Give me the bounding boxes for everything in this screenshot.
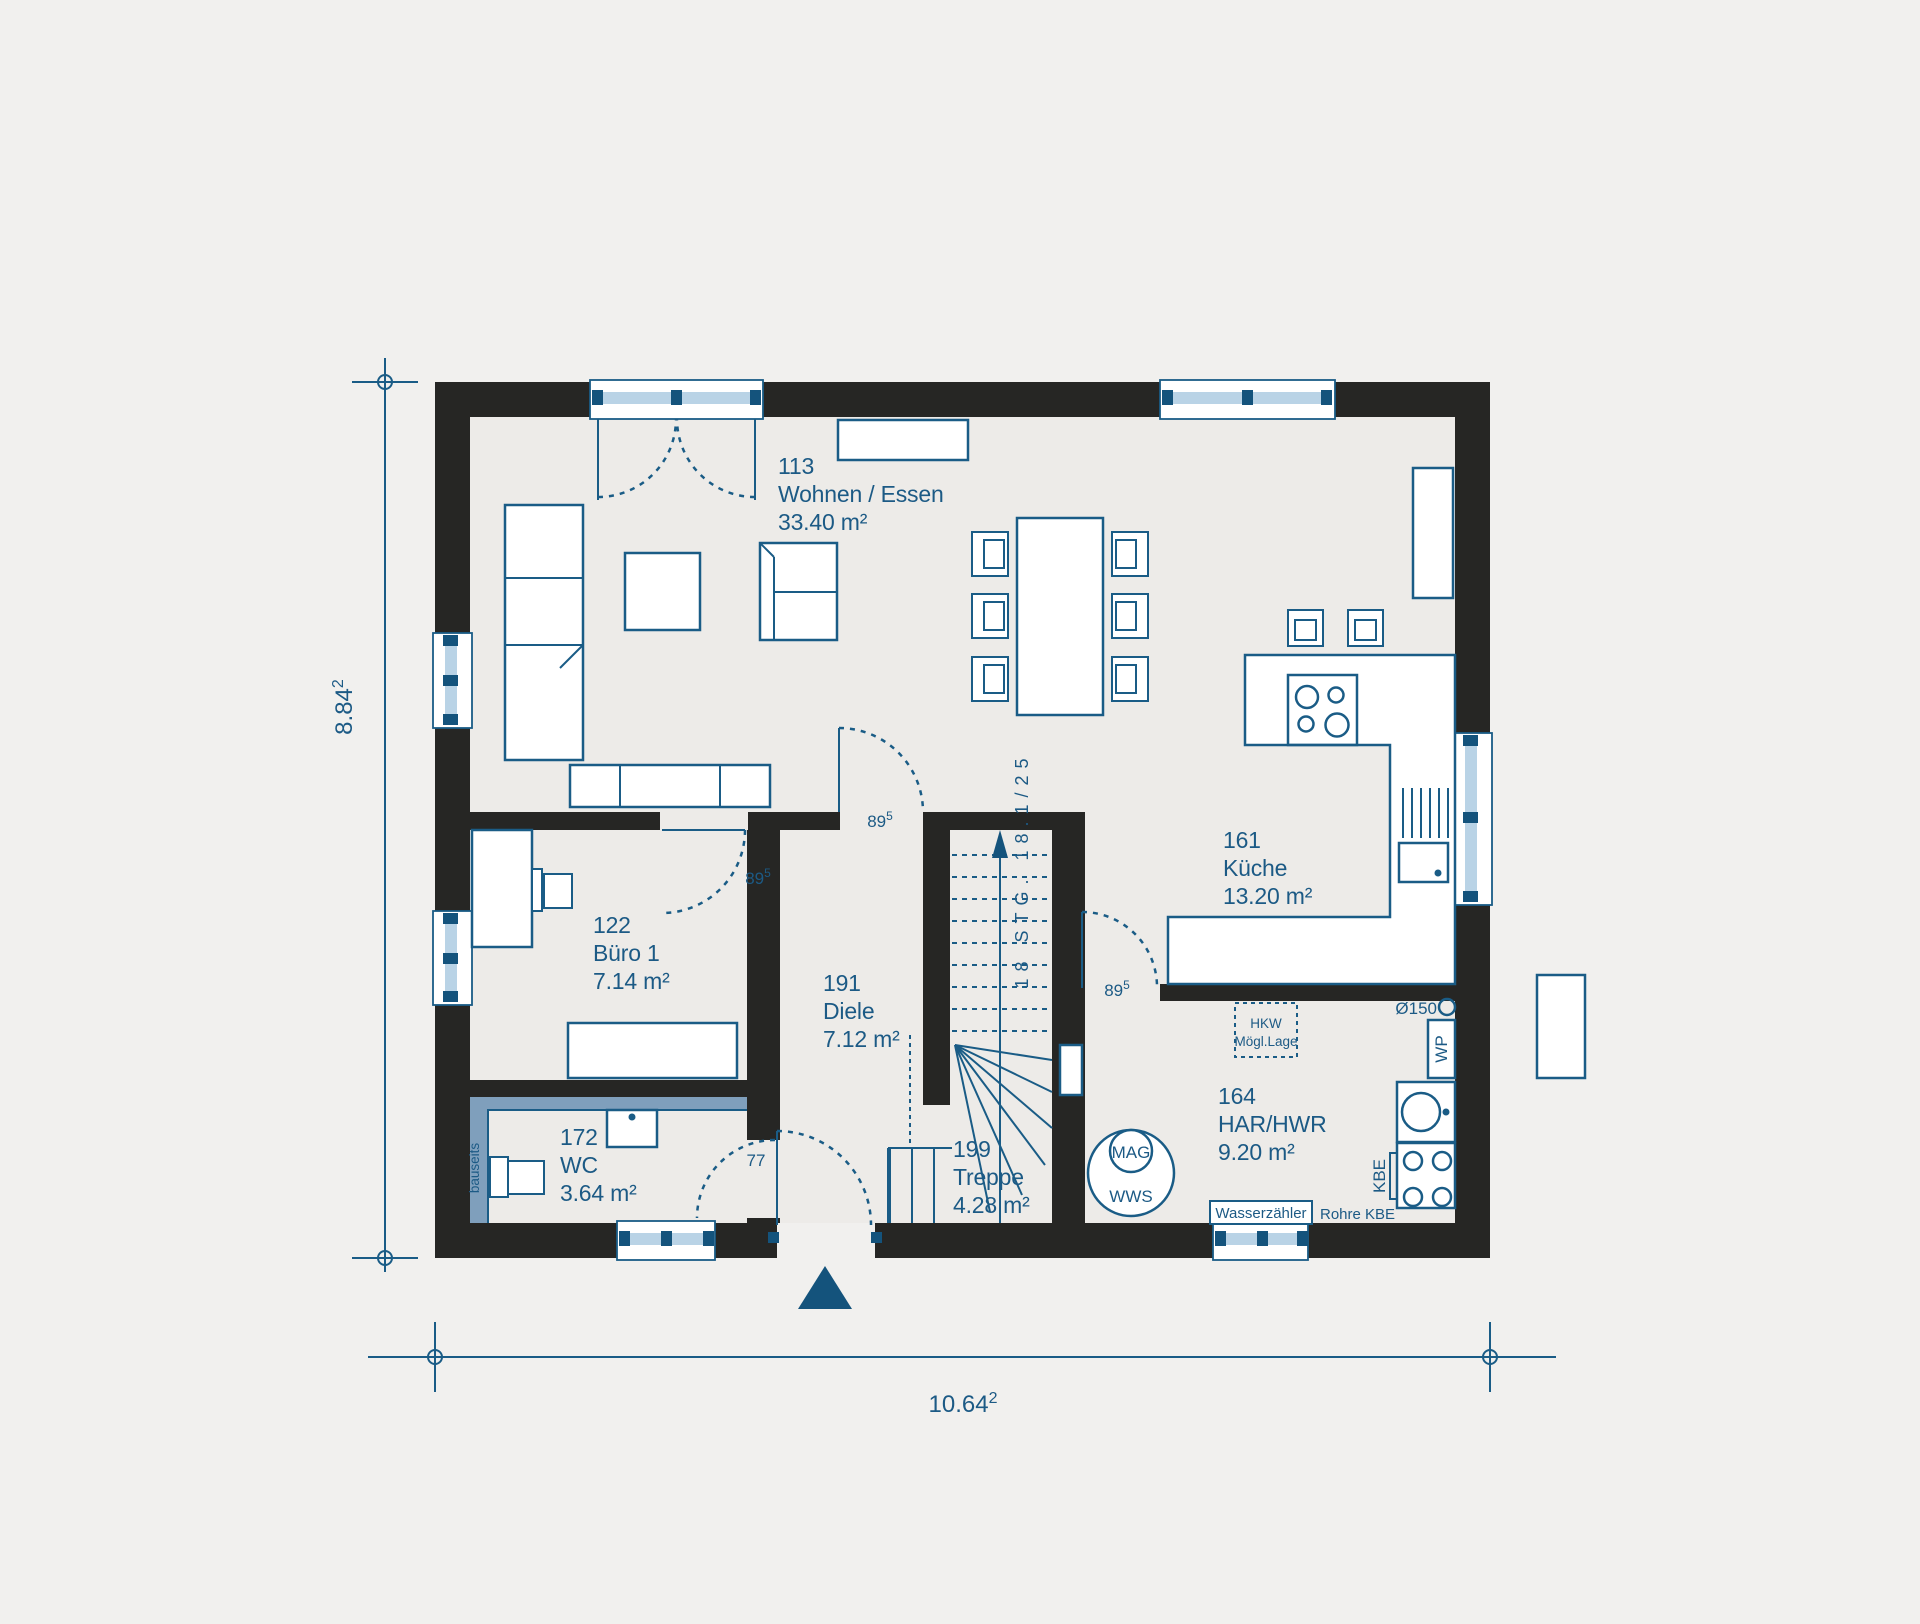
window-right-kueche (1453, 733, 1492, 905)
stool (1288, 610, 1323, 646)
desk (472, 830, 532, 947)
exterior-unit (1537, 975, 1585, 1078)
wp-label: WP (1432, 1035, 1451, 1062)
tv-lowboard (570, 765, 770, 807)
floor-plan-page: 18 STG. 18.1/25 (0, 0, 1920, 1624)
mag-wws-tank: MAG WWS (1088, 1130, 1174, 1216)
sofa-small (760, 543, 837, 640)
entrance-arrow-icon (798, 1266, 852, 1309)
chair (1112, 594, 1148, 638)
vent-label: Ø150 (1395, 999, 1437, 1018)
dimension-horizontal: 10.642 (368, 1322, 1556, 1418)
sofa-large (505, 505, 583, 760)
window-wc (617, 1221, 715, 1260)
floor-plan-drawing: 18 STG. 18.1/25 (0, 0, 1920, 1624)
svg-text:Mögl.Lage: Mögl.Lage (1234, 1034, 1297, 1049)
svg-text:HKW: HKW (1250, 1016, 1282, 1031)
width-dimension: 10.642 (929, 1390, 998, 1418)
bauseits-label: bauseits (467, 1143, 482, 1194)
dimension-vertical: 8.842 (330, 358, 418, 1272)
height-dimension: 8.842 (330, 679, 358, 735)
door-label-wc: 77 (747, 1151, 766, 1170)
window-left-lower (433, 911, 472, 1005)
desk-chair (532, 869, 572, 911)
window-kueche-top (1160, 380, 1335, 419)
bauseits-band-horizontal (470, 1097, 747, 1110)
chair (972, 594, 1008, 638)
kbe-label: KBE (1370, 1159, 1389, 1193)
radiator (1060, 1045, 1082, 1095)
rohre-kbe-label: Rohre KBE (1320, 1206, 1395, 1223)
window-har (1213, 1221, 1308, 1260)
chair (1112, 532, 1148, 576)
window-left-upper (433, 633, 472, 728)
stair-note: 18 STG. 18.1/25 (1012, 751, 1032, 988)
tall-cabinet (1413, 468, 1453, 598)
stool (1348, 610, 1383, 646)
heat-pump: WP (1428, 1020, 1455, 1078)
washbasin (607, 1110, 657, 1147)
wws-label: WWS (1109, 1187, 1152, 1206)
coffee-table (625, 553, 700, 630)
chair (972, 657, 1008, 701)
dining-table (1017, 518, 1103, 715)
chair (972, 532, 1008, 576)
sideboard-top (838, 420, 968, 460)
sideboard-buero (568, 1023, 737, 1078)
water-meter: Wasserzähler (1210, 1201, 1312, 1224)
mag-label: MAG (1112, 1143, 1151, 1162)
washing-machine (1397, 1082, 1455, 1142)
toilet (490, 1157, 544, 1197)
chair (1112, 657, 1148, 701)
wasserzaehler-label: Wasserzähler (1215, 1205, 1306, 1222)
